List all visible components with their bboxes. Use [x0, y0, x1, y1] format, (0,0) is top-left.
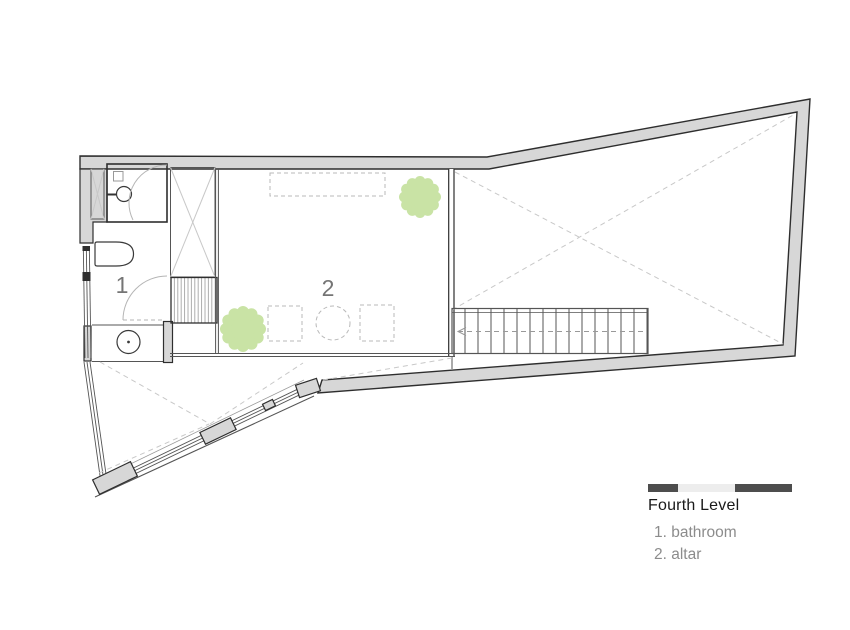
legend-item-altar: 2. altar	[654, 544, 818, 566]
tree-icon	[220, 306, 266, 352]
void-x-icon	[452, 114, 795, 344]
room-label-altar: 2	[322, 275, 335, 301]
seat-outline	[360, 305, 394, 341]
altar-furniture: 2	[268, 173, 394, 341]
void-strip	[171, 168, 216, 278]
stairs-icon	[452, 309, 648, 354]
seat-outline	[268, 306, 302, 341]
door-swing-icon	[129, 165, 167, 220]
window-wall-southwest-left	[84, 362, 108, 490]
scale-bar-segment	[678, 484, 735, 492]
tree-icon	[399, 176, 441, 218]
floor-plan-page: 1 2	[0, 0, 850, 630]
room-label-bathroom: 1	[116, 272, 129, 298]
altar-table-outline	[270, 173, 385, 196]
exterior-wall	[80, 99, 810, 393]
wc-room	[107, 164, 167, 222]
round-table-outline	[316, 306, 350, 340]
door-swing-icon	[123, 276, 167, 320]
wall-mullion	[263, 399, 276, 410]
wall-mullion	[296, 378, 321, 397]
legend-items: 1. bathroom 2. altar	[648, 522, 818, 566]
scale-bar-segment	[735, 484, 792, 492]
legend-title: Fourth Level	[648, 497, 818, 515]
bathroom: 1	[84, 242, 173, 363]
scale-bar-segment	[648, 484, 678, 492]
scale-bar-icon	[648, 484, 792, 492]
ladder-hatch-icon	[171, 278, 217, 324]
legend-item-bathroom: 1. bathroom	[654, 522, 818, 544]
bathtub-icon	[95, 242, 134, 266]
window-wall-southwest	[93, 378, 321, 497]
legend: Fourth Level 1. bathroom 2. altar	[648, 484, 818, 566]
wall-fixture-icon	[114, 172, 124, 182]
wall-mullion	[93, 462, 138, 495]
sink-drain-dot	[127, 341, 130, 344]
